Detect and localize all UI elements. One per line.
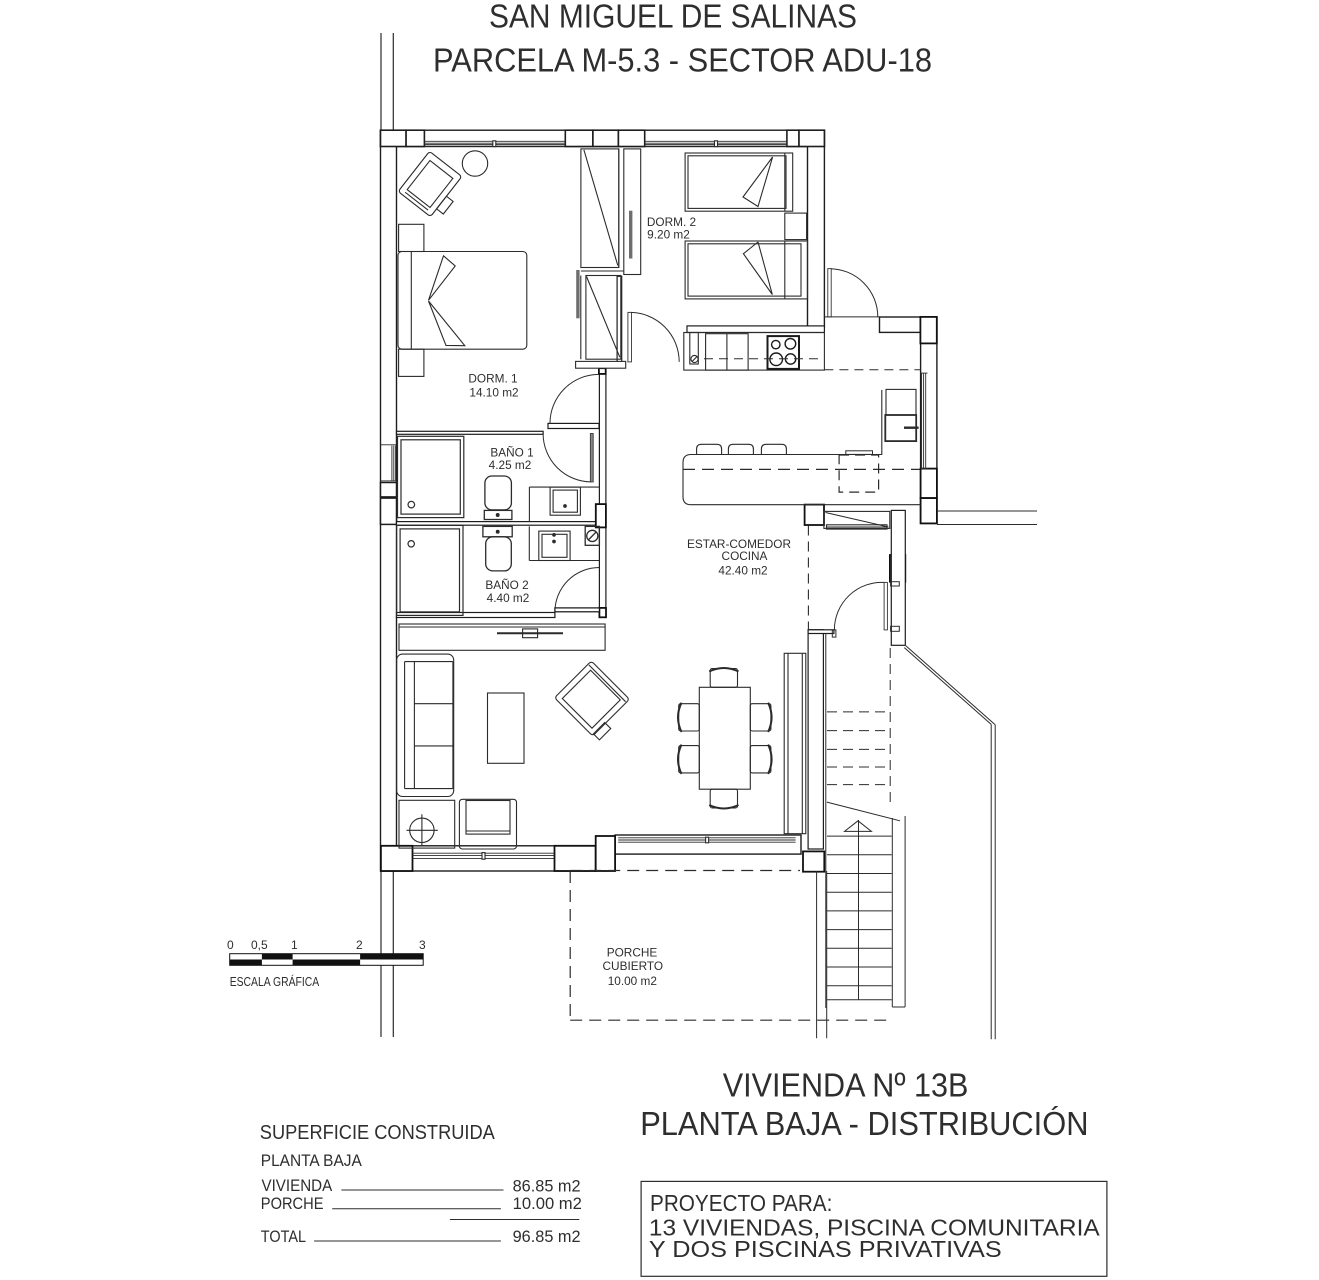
svg-text:3: 3 xyxy=(419,938,426,952)
svg-text:PLANTA BAJA - DISTRIBUCIÓN: PLANTA BAJA - DISTRIBUCIÓN xyxy=(640,1105,1088,1143)
svg-text:1: 1 xyxy=(291,938,298,952)
svg-text:42.40 m2: 42.40 m2 xyxy=(718,563,767,577)
svg-text:PROYECTO PARA:: PROYECTO PARA: xyxy=(650,1190,832,1216)
svg-text:COCINA: COCINA xyxy=(722,549,768,563)
svg-text:VIVIENDA: VIVIENDA xyxy=(262,1177,333,1195)
svg-text:PARCELA M-5.3 - SECTOR ADU-18: PARCELA M-5.3 - SECTOR ADU-18 xyxy=(433,43,932,80)
svg-text:BAÑO 2: BAÑO 2 xyxy=(485,578,528,592)
svg-text:SAN MIGUEL DE SALINAS: SAN MIGUEL DE SALINAS xyxy=(489,0,857,36)
svg-text:ESCALA GRÁFICA: ESCALA GRÁFICA xyxy=(230,974,320,989)
svg-text:VIVIENDA Nº 13B: VIVIENDA Nº 13B xyxy=(723,1068,969,1105)
svg-text:86.85 m2: 86.85 m2 xyxy=(513,1177,581,1195)
svg-text:DORM. 1: DORM. 1 xyxy=(468,372,517,386)
svg-text:PORCHE: PORCHE xyxy=(607,946,658,960)
svg-text:14.10 m2: 14.10 m2 xyxy=(469,386,518,400)
svg-text:9.20 m2: 9.20 m2 xyxy=(647,228,690,242)
svg-text:0: 0 xyxy=(227,938,234,952)
svg-text:PORCHE: PORCHE xyxy=(261,1195,324,1213)
svg-text:Y DOS PISCINAS PRIVATIVAS: Y DOS PISCINAS PRIVATIVAS xyxy=(649,1236,1002,1262)
svg-text:4.25 m2: 4.25 m2 xyxy=(489,458,532,472)
svg-text:10.00 m2: 10.00 m2 xyxy=(513,1195,582,1213)
svg-text:2: 2 xyxy=(356,938,363,952)
svg-text:CUBIERTO: CUBIERTO xyxy=(603,959,664,973)
svg-text:0,5: 0,5 xyxy=(251,938,268,952)
svg-text:SUPERFICIE CONSTRUIDA: SUPERFICIE CONSTRUIDA xyxy=(260,1122,496,1144)
svg-text:4.40 m2: 4.40 m2 xyxy=(487,591,530,605)
svg-text:TOTAL: TOTAL xyxy=(261,1228,306,1246)
svg-text:96.85 m2: 96.85 m2 xyxy=(513,1228,581,1246)
svg-text:PLANTA BAJA: PLANTA BAJA xyxy=(261,1152,362,1170)
svg-text:10.00 m2: 10.00 m2 xyxy=(608,974,657,988)
